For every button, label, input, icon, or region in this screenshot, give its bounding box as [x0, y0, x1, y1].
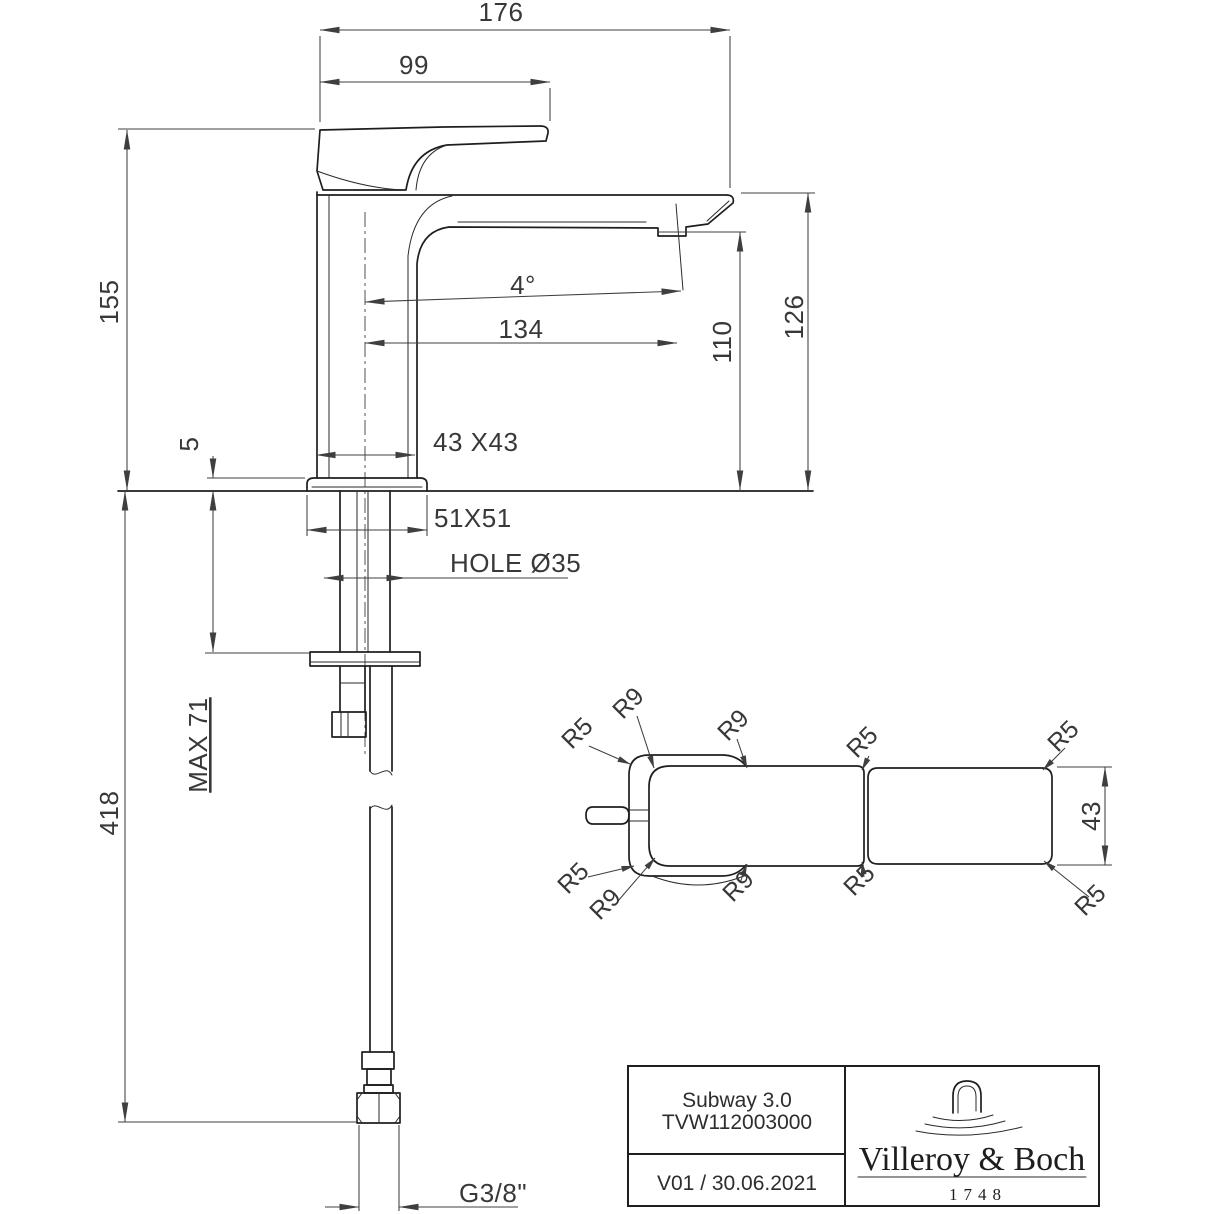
dim-spray-angle: 4°	[510, 270, 536, 300]
dim-handle-projection: 99	[399, 50, 429, 80]
dim-spout-reach: 134	[499, 314, 544, 344]
dim-hose-length: 418	[94, 791, 124, 836]
dim-overall-projection: 176	[479, 0, 524, 27]
dim-mounting-hole: HOLE Ø35	[450, 548, 581, 578]
article-number: TVW112003000	[662, 1111, 812, 1134]
brand-name: Villeroy & Boch	[859, 1141, 1085, 1178]
product-name: Subway 3.0	[682, 1089, 792, 1112]
dim-outlet-height: 110	[707, 321, 737, 364]
version-date: V01 / 30.06.2021	[657, 1172, 817, 1195]
brand-year: 1748	[949, 1185, 1007, 1204]
dim-escutcheon-cross-section: 51X51	[434, 503, 512, 533]
dim-max-deck-thickness: MAX 71	[183, 697, 213, 793]
dim-body-cross-section: 43 X43	[433, 427, 518, 457]
paper	[0, 0, 1214, 1214]
dim-escutcheon-height: 5	[174, 437, 204, 452]
technical-drawing: 176 99 155 5 MAX 71 418 43 X43	[0, 0, 1214, 1214]
dim-height-to-top: 155	[94, 280, 124, 325]
dim-top-view-width: 43	[1076, 801, 1106, 831]
dim-spout-top-height: 126	[779, 295, 809, 340]
dim-supply-connection: G3/8"	[459, 1178, 527, 1208]
drawing-page: 176 99 155 5 MAX 71 418 43 X43	[0, 0, 1214, 1214]
